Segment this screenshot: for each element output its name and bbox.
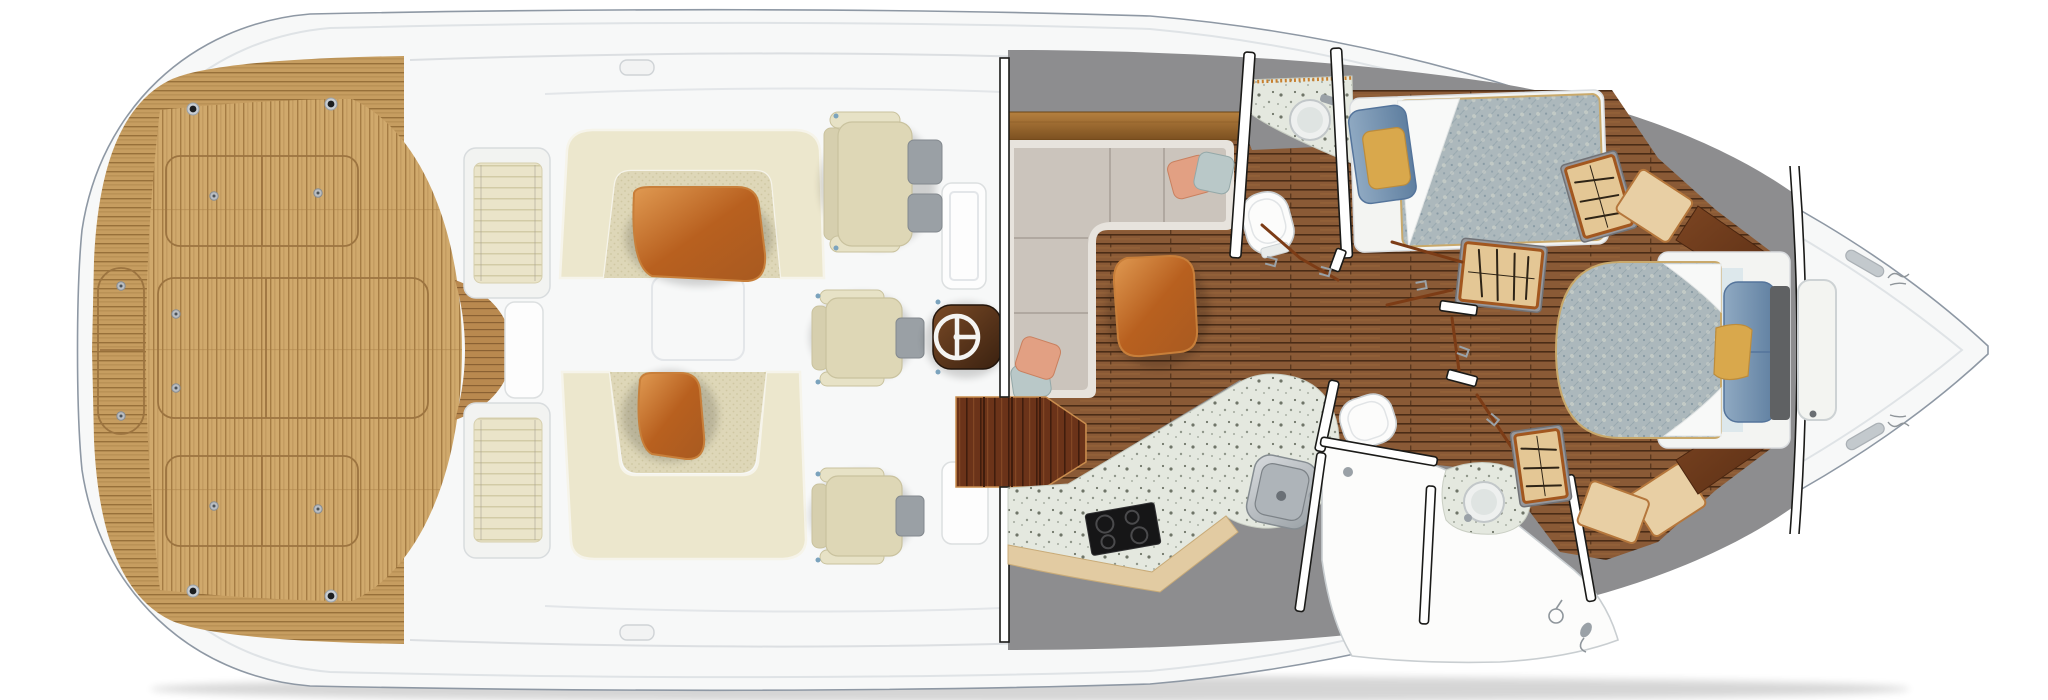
mezzanine-seat-starboard bbox=[464, 403, 550, 558]
mezzanine bbox=[455, 148, 550, 558]
hanging-locker bbox=[1510, 425, 1572, 507]
table-port bbox=[633, 187, 765, 281]
cockpit-sole-teak bbox=[146, 99, 462, 601]
lounge-port bbox=[560, 130, 824, 286]
mezzanine-seat-port bbox=[464, 148, 550, 298]
anchor-hatch bbox=[1798, 280, 1836, 420]
coffee-table bbox=[1114, 256, 1197, 356]
salon-shelf bbox=[1008, 112, 1246, 140]
cleat-icon bbox=[620, 60, 654, 75]
yacht-floorplan bbox=[0, 0, 2048, 700]
companionway-steps bbox=[956, 397, 1086, 487]
mezzanine-step bbox=[505, 302, 543, 398]
floorplan-rendering bbox=[0, 0, 2048, 700]
shower-drain bbox=[1343, 467, 1353, 477]
screw-icon bbox=[1810, 411, 1817, 418]
lounge-starboard bbox=[562, 370, 806, 559]
headboard bbox=[1770, 286, 1790, 420]
head-sink-icon bbox=[1464, 482, 1504, 522]
cleat-icon bbox=[620, 625, 654, 640]
master-berth bbox=[1556, 252, 1790, 448]
hanging-locker bbox=[1455, 238, 1547, 313]
table-starboard bbox=[639, 373, 705, 459]
helm-side-console-port bbox=[942, 183, 986, 289]
helm-console bbox=[924, 302, 1008, 378]
